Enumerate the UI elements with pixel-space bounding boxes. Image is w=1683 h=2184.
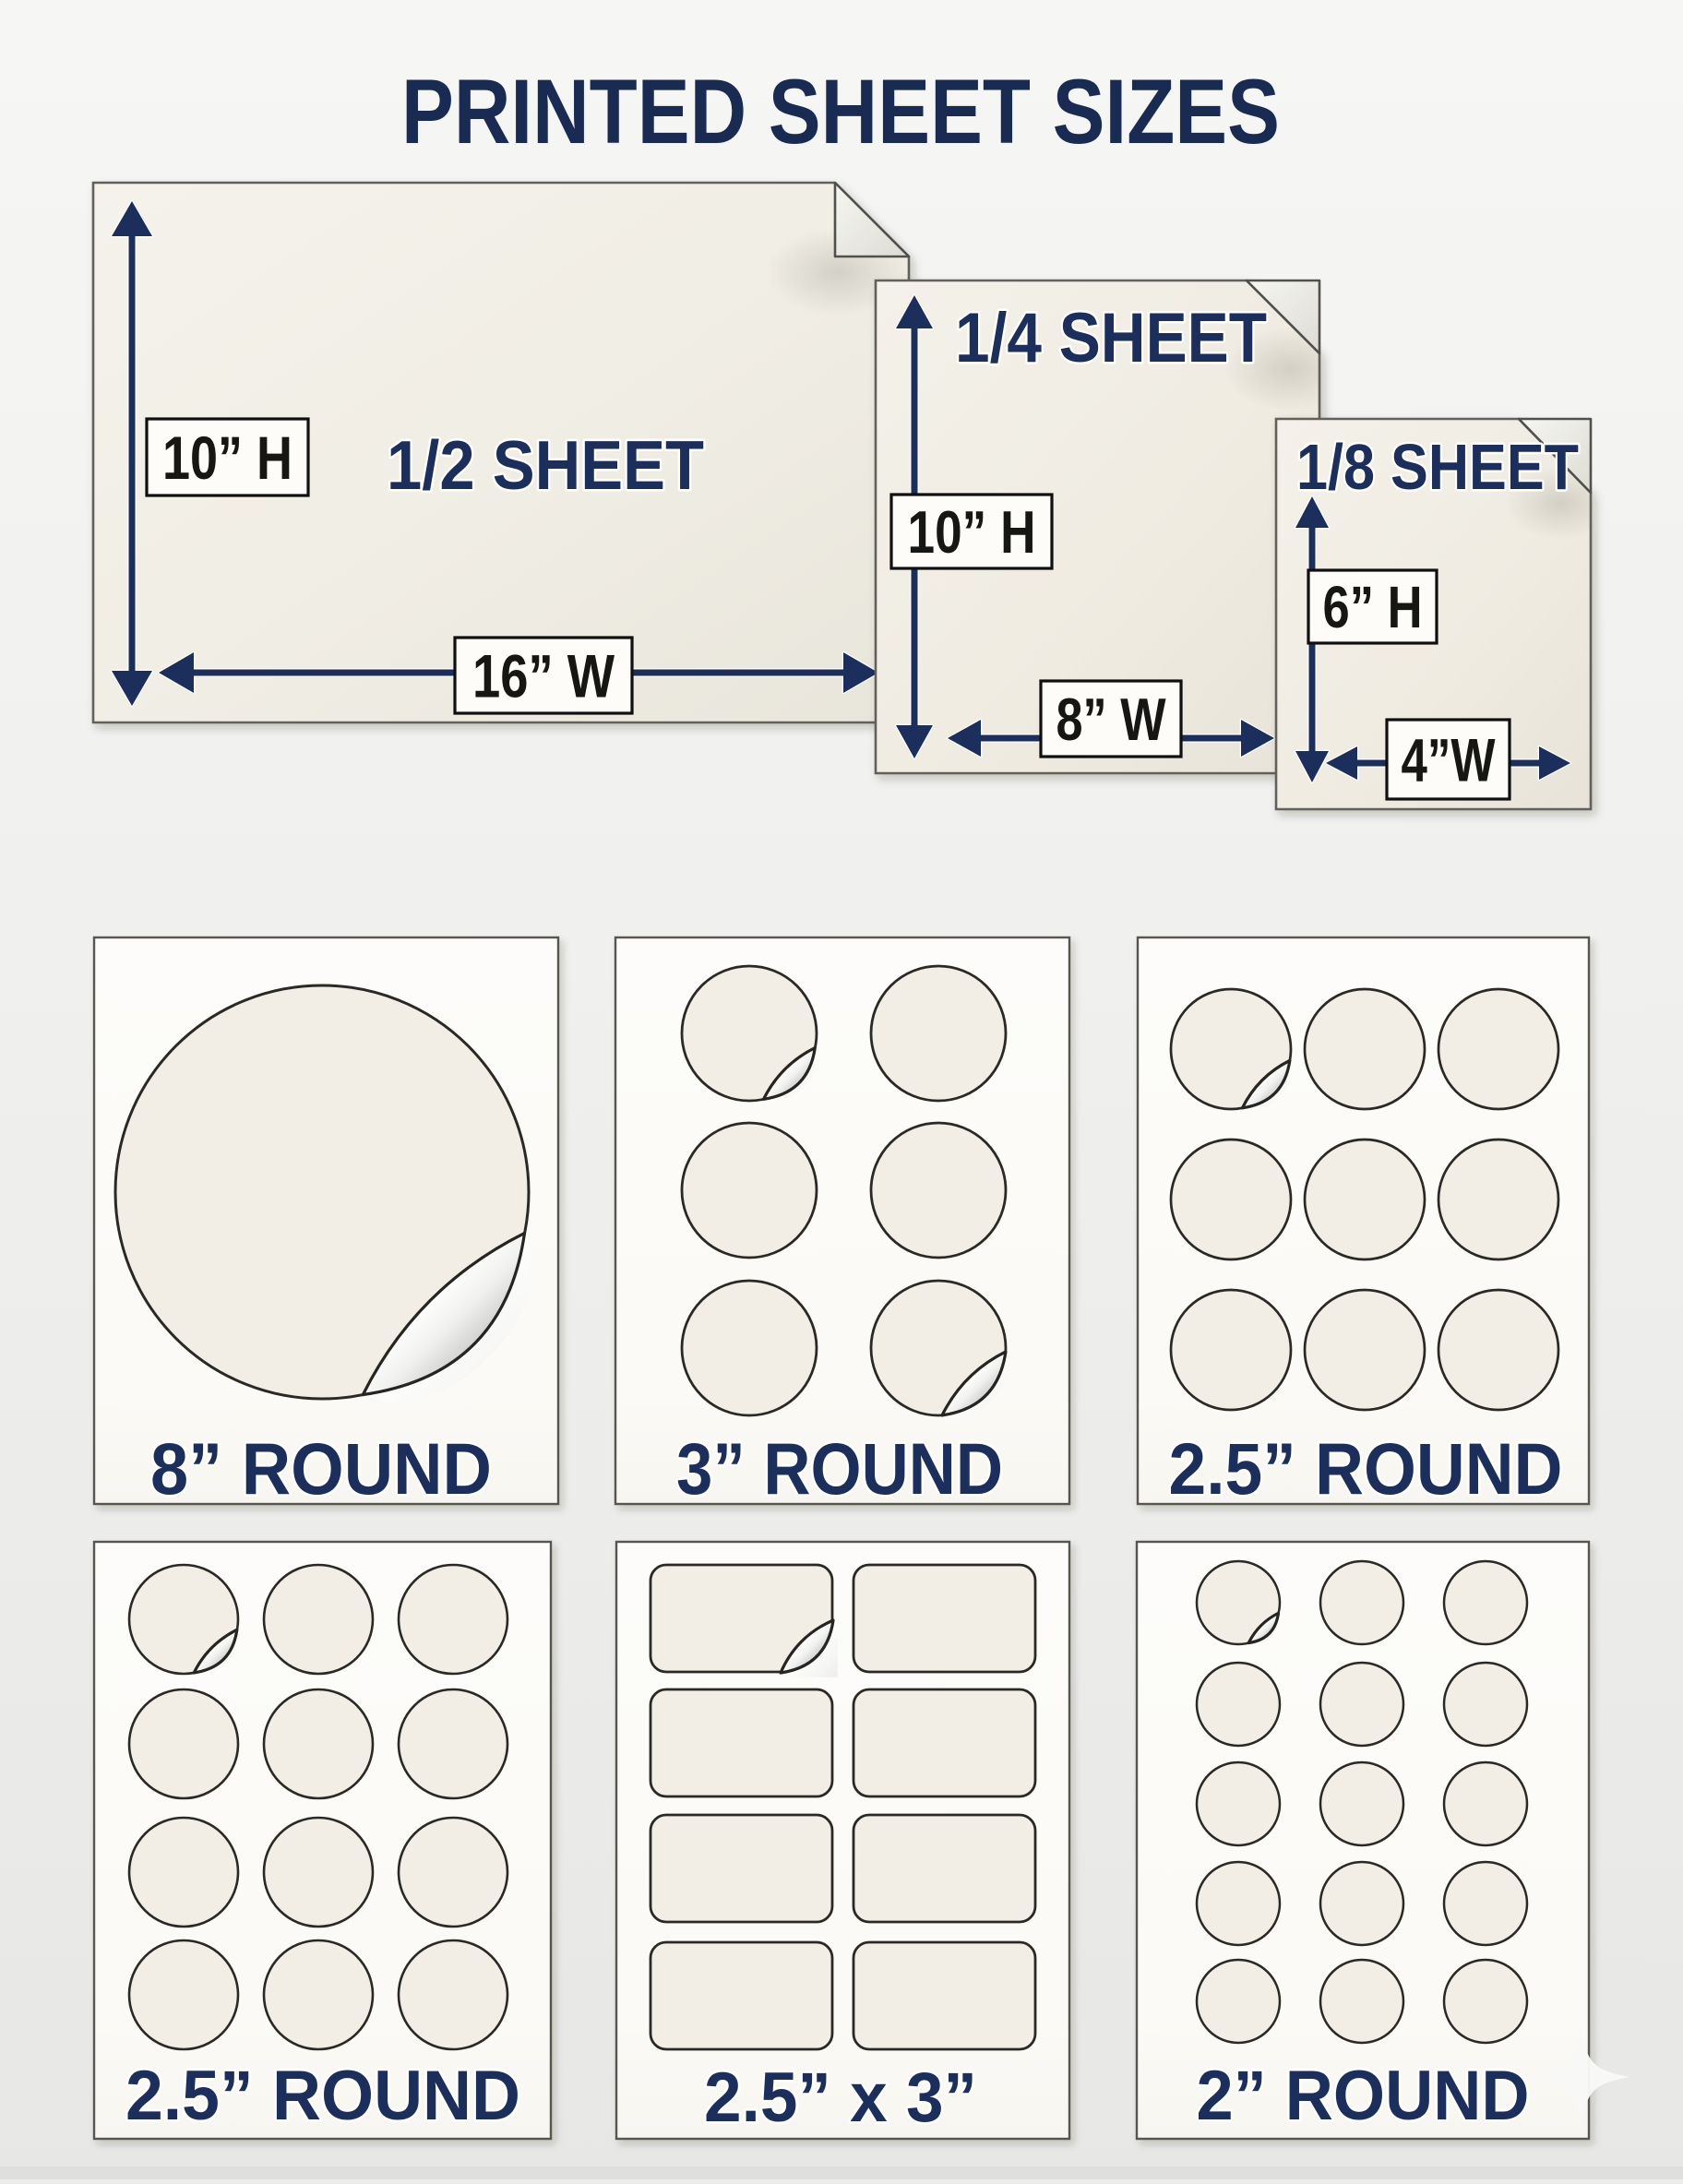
svg-text:2.5” ROUND: 2.5” ROUND — [125, 2057, 520, 2135]
svg-text:2.5” ROUND: 2.5” ROUND — [1169, 1427, 1563, 1510]
svg-text:4”W: 4”W — [1402, 725, 1497, 794]
svg-text:8” W: 8” W — [1056, 686, 1167, 753]
svg-text:1/8 SHEET: 1/8 SHEET — [1296, 431, 1579, 503]
svg-text:3” ROUND: 3” ROUND — [676, 1427, 1003, 1510]
svg-text:1/2 SHEET: 1/2 SHEET — [387, 426, 704, 504]
svg-text:8” ROUND: 8” ROUND — [150, 1427, 492, 1510]
svg-text:10” H: 10” H — [162, 424, 292, 492]
svg-text:6” H: 6” H — [1323, 574, 1423, 640]
svg-text:PRINTED SHEET SIZES: PRINTED SHEET SIZES — [401, 60, 1280, 162]
svg-text:10” H: 10” H — [908, 498, 1036, 566]
svg-text:1/4 SHEET: 1/4 SHEET — [955, 299, 1267, 377]
svg-text:16” W: 16” W — [472, 641, 615, 710]
svg-text:2.5” x 3”: 2.5” x 3” — [704, 2059, 977, 2137]
svg-text:2” ROUND: 2” ROUND — [1197, 2057, 1530, 2135]
